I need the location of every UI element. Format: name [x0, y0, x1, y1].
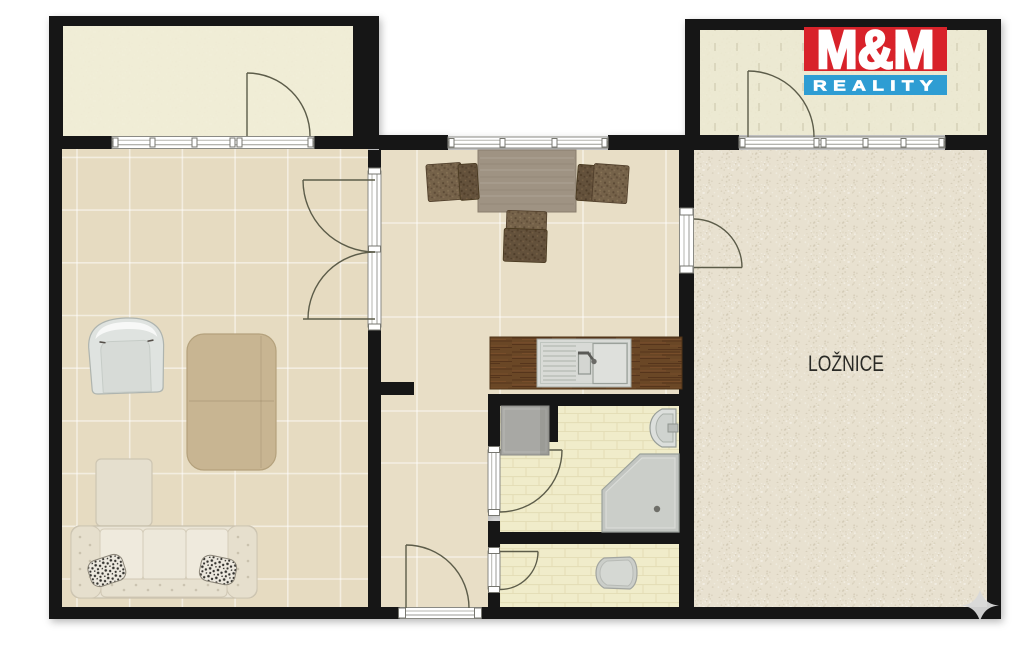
svg-text:REALITY: REALITY [813, 78, 939, 95]
svg-text:M&M: M&M [817, 20, 935, 80]
svg-text:LOŽNICE: LOŽNICE [808, 351, 884, 376]
